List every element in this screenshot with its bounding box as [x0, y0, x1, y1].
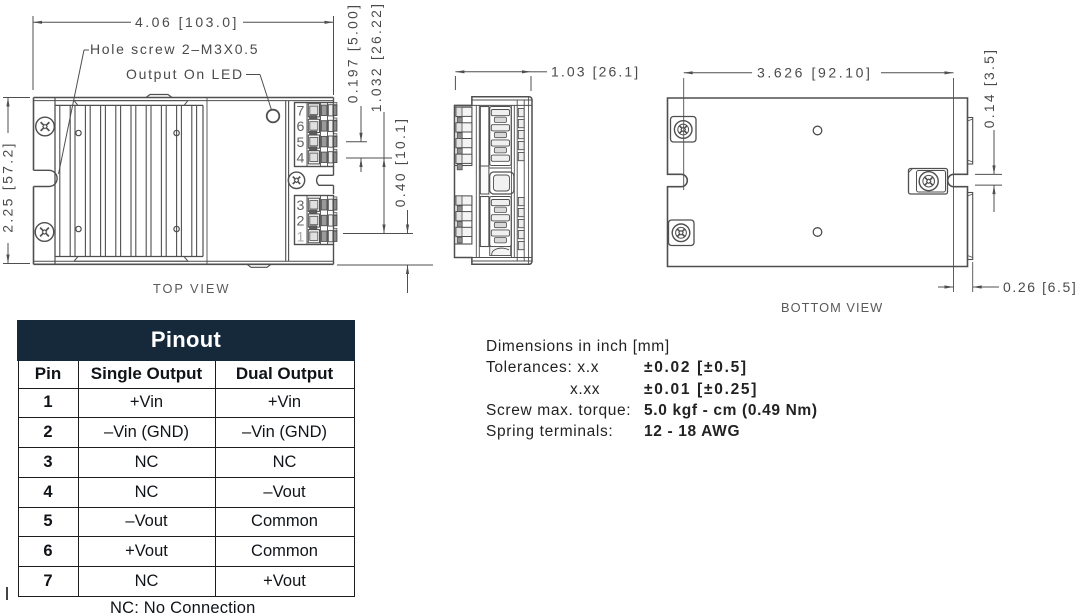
svg-text:Output On LED: Output On LED: [126, 66, 244, 82]
svg-text:Hole screw 2–M3X0.5: Hole screw 2–M3X0.5: [90, 41, 259, 57]
svg-text:3.626 [92.10]: 3.626 [92.10]: [757, 65, 873, 81]
svg-text:0.14 [3.5]: 0.14 [3.5]: [982, 48, 997, 129]
svg-text:7: 7: [297, 104, 305, 120]
svg-text:5: 5: [297, 135, 305, 151]
svg-text:TOP VIEW: TOP VIEW: [153, 281, 230, 296]
svg-text:6: 6: [297, 119, 305, 135]
svg-text:1: 1: [297, 229, 305, 245]
svg-text:4: 4: [297, 151, 305, 167]
svg-text:1.032 [26.22]: 1.032 [26.22]: [369, 2, 384, 112]
svg-text:BOTTOM VIEW: BOTTOM VIEW: [781, 300, 883, 315]
svg-text:2.25 [57.2]: 2.25 [57.2]: [0, 141, 16, 232]
svg-text:0.26 [6.5]: 0.26 [6.5]: [1003, 279, 1077, 295]
svg-text:4.06 [103.0]: 4.06 [103.0]: [135, 14, 239, 30]
svg-text:0.40 [10.1]: 0.40 [10.1]: [393, 117, 408, 208]
svg-text:2: 2: [297, 214, 305, 230]
svg-text:0.197 [5.00]: 0.197 [5.00]: [346, 3, 361, 103]
svg-text:1.03 [26.1]: 1.03 [26.1]: [551, 64, 640, 80]
svg-text:3: 3: [297, 198, 305, 214]
